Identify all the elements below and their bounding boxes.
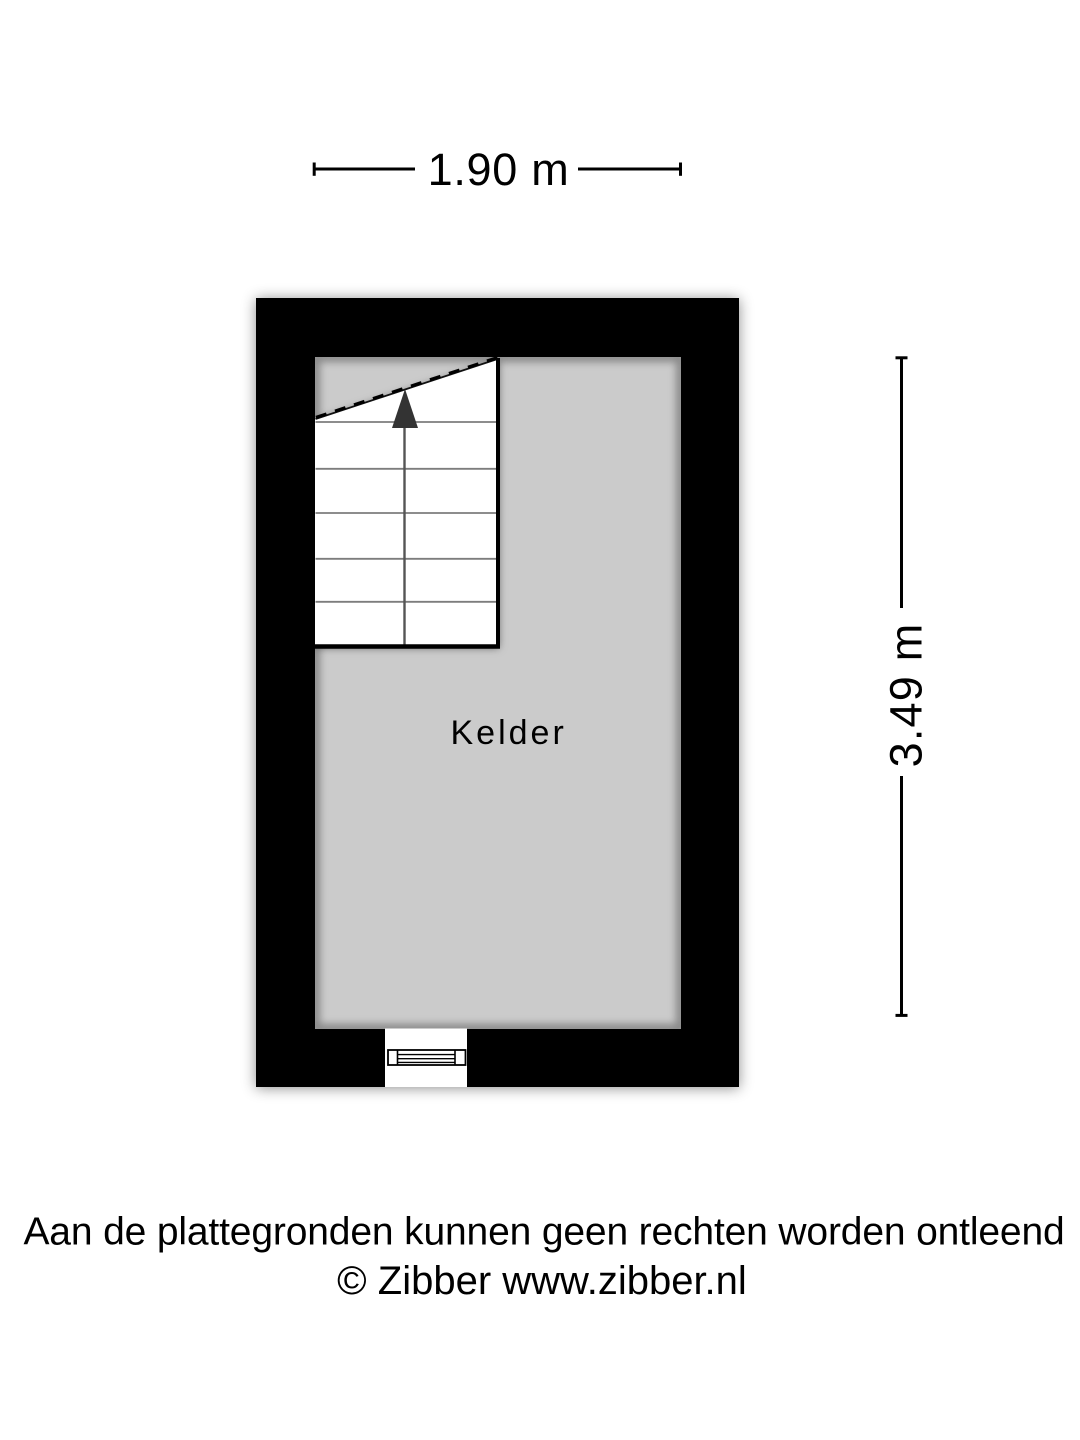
svg-text:© Zibber www.zibber.nl: © Zibber www.zibber.nl bbox=[337, 1259, 747, 1303]
svg-text:Aan de plattegronden kunnen ge: Aan de plattegronden kunnen geen rechten… bbox=[23, 1211, 1064, 1254]
svg-text:Kelder: Kelder bbox=[451, 714, 567, 752]
svg-text:1.90 m: 1.90 m bbox=[428, 144, 570, 195]
svg-text:3.49 m: 3.49 m bbox=[881, 623, 932, 768]
